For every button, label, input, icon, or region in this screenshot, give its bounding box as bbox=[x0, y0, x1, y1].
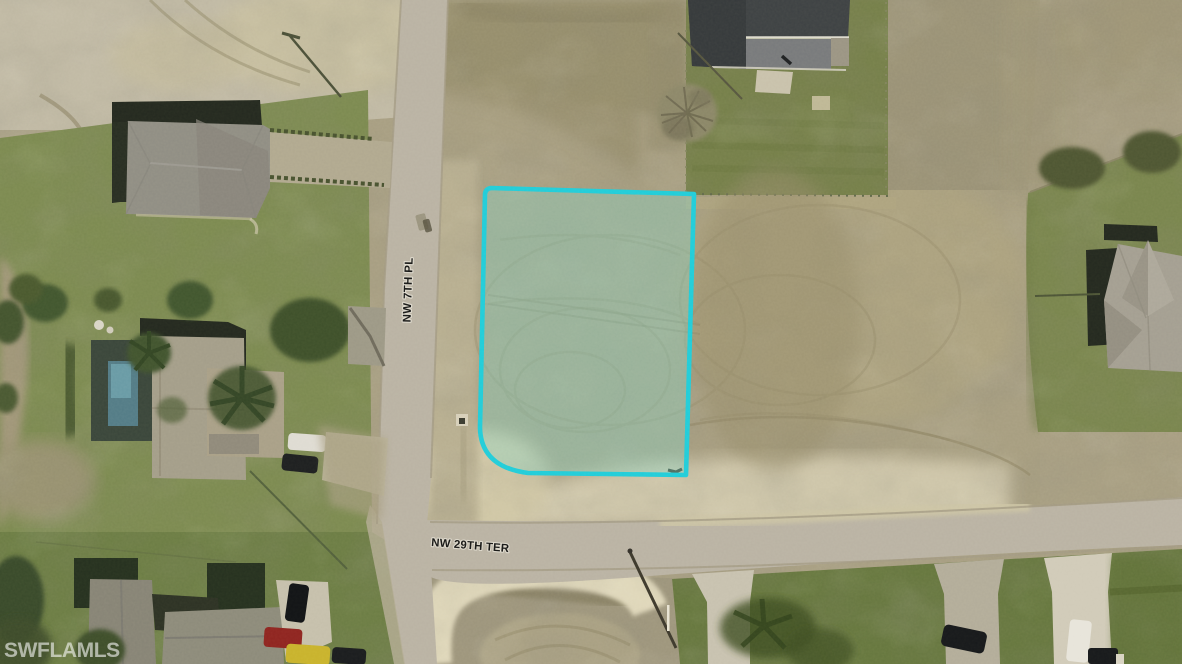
svg-text:NW 7TH PL: NW 7TH PL bbox=[402, 257, 416, 322]
svg-text:SWFLAMLS: SWFLAMLS bbox=[4, 639, 120, 662]
